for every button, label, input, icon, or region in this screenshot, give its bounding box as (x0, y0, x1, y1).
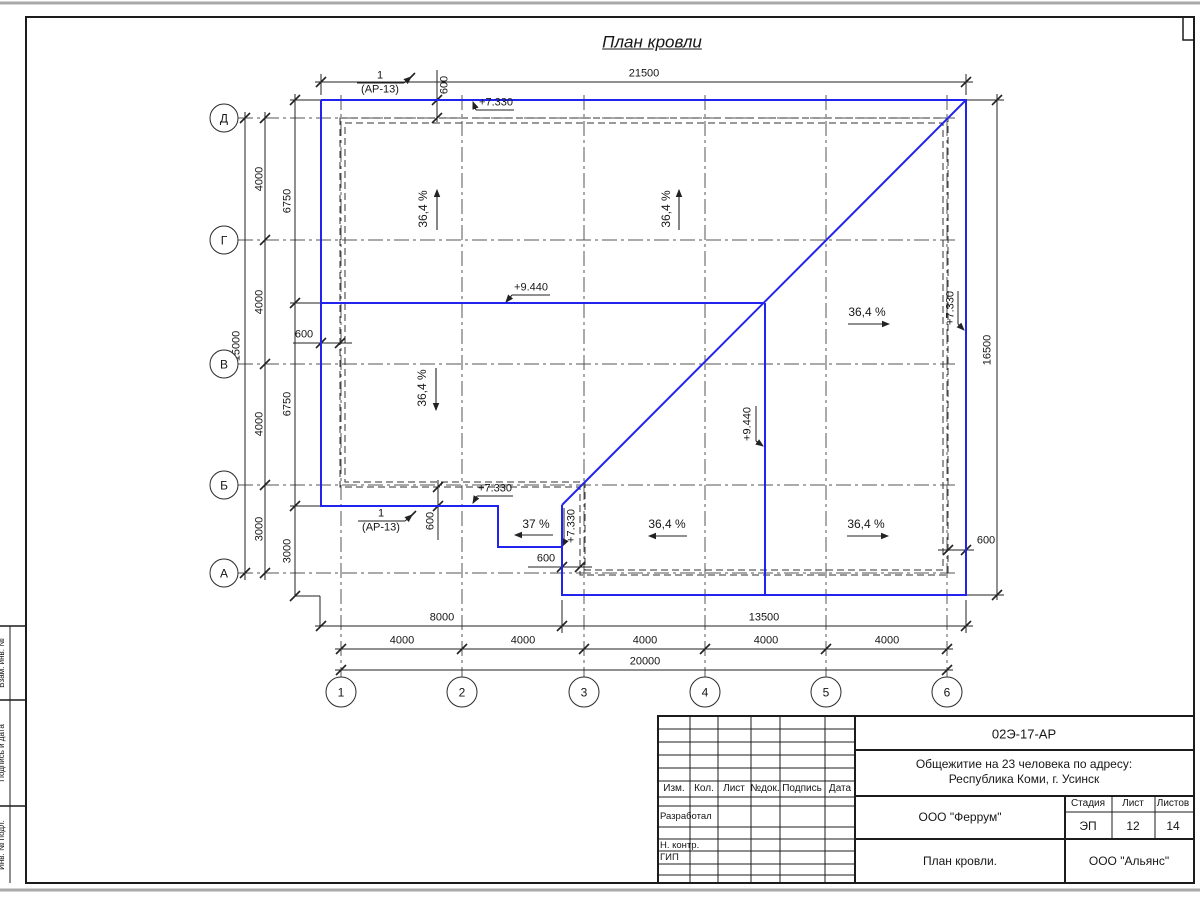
dim-bottom-8000: 8000 (430, 613, 454, 624)
dim-roof-left-3: 3000 (283, 539, 294, 563)
slope-label-nw: 36,4 % (417, 190, 429, 227)
titleblock-sheet-name: План кровли. (923, 855, 997, 867)
drawing-sheet: План кровли 21500 16500 4000 4000 4000 3… (0, 0, 1200, 900)
callout-bottom-ref: (АР-13) (362, 523, 400, 534)
slope-label-s1: 36,4 % (648, 518, 685, 530)
dimension-lines (245, 70, 1004, 670)
axis-letter: Д (220, 111, 228, 125)
callout-top-ref: (АР-13) (361, 85, 399, 96)
margin-label-1: Взам. инв. № (0, 638, 6, 688)
titleblock-sheet-value: 12 (1126, 820, 1139, 832)
dim-left-2: 4000 (255, 290, 266, 314)
axis-bubble-col-2: 2 (447, 677, 478, 708)
axis-bubble-row-v: В (210, 350, 239, 379)
dimension-ticks (240, 73, 1002, 675)
titleblock-col-izm: Изм. (663, 784, 684, 794)
drawing-title: План кровли (602, 34, 702, 51)
axis-letter: Б (220, 478, 228, 492)
axis-number: 4 (702, 685, 709, 699)
axis-letter: В (220, 357, 228, 371)
dim-bay-4: 4000 (754, 636, 778, 647)
dim-eave-offset-left: 600 (295, 330, 313, 341)
titleblock-role-ncontrol: Н. контр. (660, 840, 699, 851)
titleblock-col-list: Лист (723, 784, 745, 794)
titleblock-role-gip: ГИП (660, 852, 679, 863)
slope-label-w: 36,4 % (416, 369, 428, 406)
callout-bottom-number: 1 (378, 509, 384, 520)
elevation-eave-notch: +7.330 (567, 509, 578, 543)
titleblock-sheets-value: 14 (1166, 820, 1179, 832)
dim-eave-offset-top: 600 (440, 76, 451, 94)
axis-bubble-col-1: 1 (326, 677, 357, 708)
dim-bottom-total: 20000 (630, 657, 661, 668)
axis-number: 6 (944, 685, 951, 699)
callout-top-number: 1 (377, 71, 383, 82)
dim-roof-left-1: 6750 (283, 189, 294, 213)
axis-letter: Г (221, 233, 228, 247)
dim-top-total: 21500 (629, 69, 660, 80)
drawing-frame (0, 17, 1194, 883)
axis-grid (238, 95, 958, 678)
dim-left-4: 3000 (255, 517, 266, 541)
axis-bubble-col-6: 6 (932, 677, 963, 708)
slope-label-notch: 37 % (522, 518, 549, 530)
axis-bubble-col-4: 4 (690, 677, 721, 708)
axis-number: 3 (581, 685, 588, 699)
dim-bay-1: 4000 (390, 636, 414, 647)
dim-eave-offset-right: 600 (977, 536, 995, 547)
margin-label-3: Инв. № подл. (0, 820, 6, 870)
dim-bay-5: 4000 (875, 636, 899, 647)
axis-letter: А (220, 566, 228, 580)
titleblock-stage-label: Стадия (1071, 799, 1105, 809)
titleblock-designer-org: ООО "Феррум" (919, 811, 1002, 823)
margin-label-2: Подпись и дата (0, 724, 6, 782)
titleblock-col-ndok: №док. (750, 784, 779, 794)
axis-bubble-row-d: Д (210, 104, 239, 133)
slope-label-s2: 36,4 % (847, 518, 884, 530)
elevation-eave-bottomleft: +7.330 (478, 484, 512, 495)
axis-number: 1 (338, 685, 345, 699)
elevation-eave-right: +7.330 (946, 291, 957, 325)
titleblock-role-developer: Разработал (660, 811, 712, 822)
titleblock-sheets-label: Листов (1157, 799, 1190, 809)
elevation-eave-top: +7.330 (479, 98, 513, 109)
titleblock-col-data: Дата (829, 784, 851, 794)
elevation-ridge-vertical: +9.440 (743, 407, 754, 441)
axis-bubble-col-5: 5 (811, 677, 842, 708)
dim-bottom-13500: 13500 (749, 613, 780, 624)
dim-roof-left-2: 6750 (283, 392, 294, 416)
axis-number: 5 (823, 685, 830, 699)
dim-right-total: 16500 (983, 335, 994, 366)
dim-eave-offset-bottomleft: 600 (426, 512, 437, 530)
slope-label-e: 36,4 % (848, 306, 885, 318)
titleblock-col-kol: Кол. (694, 784, 714, 794)
axis-bubble-row-b: Б (210, 471, 239, 500)
titleblock-project-line1: Общежитие на 23 человека по адресу: (916, 758, 1132, 770)
titleblock-col-podpis: Подпись (782, 784, 822, 794)
titleblock-doc-code: 02Э-17-АР (992, 728, 1056, 741)
titleblock-client-org: ООО "Альянс" (1089, 855, 1169, 867)
titleblock-sheet-label: Лист (1122, 799, 1144, 809)
dim-left-3: 4000 (255, 412, 266, 436)
axis-number: 2 (459, 685, 466, 699)
dim-eave-offset-notch: 600 (537, 554, 555, 565)
titleblock-project-line2: Республика Коми, г. Усинск (949, 773, 1100, 785)
axis-bubble-row-a: А (210, 559, 239, 588)
elevation-ridge: +9.440 (514, 283, 548, 294)
slope-label-n: 36,4 % (660, 190, 672, 227)
dim-bay-2: 4000 (511, 636, 535, 647)
axis-bubble-row-g: Г (210, 226, 239, 255)
dim-bay-3: 4000 (633, 636, 657, 647)
axis-bubble-col-3: 3 (569, 677, 600, 708)
titleblock-stage-value: ЭП (1079, 820, 1096, 832)
dim-left-1: 4000 (255, 167, 266, 191)
